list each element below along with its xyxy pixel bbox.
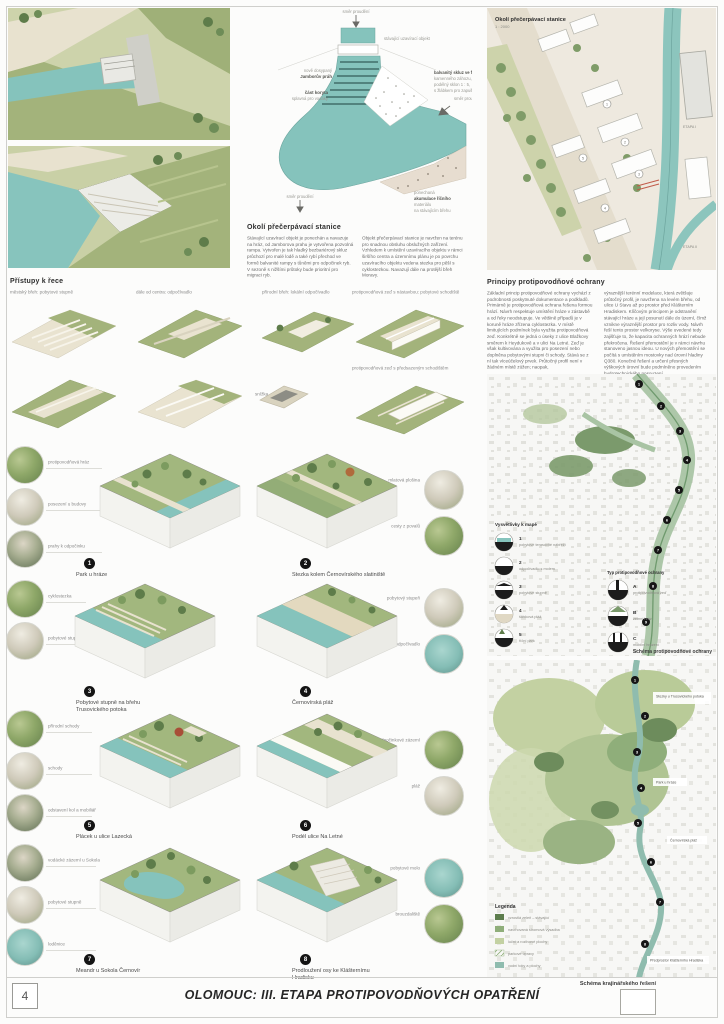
svg-text:mobilní hrazení: mobilní hrazení (633, 643, 660, 647)
site-map-stage2-label: ETAPA II (683, 245, 697, 249)
pump-station-heading: Okolí přečerpávací stanice (247, 224, 341, 231)
detail-photo-plank-paths (424, 516, 464, 556)
svg-text:parkové úpravy: parkové úpravy (508, 952, 534, 956)
svg-text:pobytové terasovité nábřeží: pobytové terasovité nábřeží (519, 543, 567, 547)
site-map: 123 45 Okolí přečerpávací stanice 1 : 20… (487, 8, 716, 270)
svg-text:říční park: říční park (519, 639, 535, 643)
site-map-scale: 1 : 2000 (495, 24, 510, 29)
block-2-number: 2 (300, 558, 311, 569)
skluz-line-2: kamenného záhozu, (434, 76, 472, 81)
koryto-label-2: splavná pro vodáky (292, 96, 329, 101)
detail-photo-seating-steps-2 (6, 886, 44, 924)
detail-photo-rest-thresholds (6, 530, 44, 568)
axon-block-8 (252, 840, 402, 952)
leader-line (46, 950, 96, 951)
svg-text:štěrková pláž: štěrková pláž (519, 615, 541, 619)
flood-map-caption: Schéma protipovodňové ochrany (633, 649, 712, 655)
svg-text:odpočívadlo s molem: odpočívadlo s molem (519, 567, 555, 571)
axon-block-5 (95, 706, 245, 818)
weir-plan-diagram: směr proudění směr proudění směr prouděn… (238, 8, 472, 218)
access-heading: Přístupy k řece (10, 278, 63, 285)
block-4-number: 4 (300, 686, 311, 697)
detail-photo-paddling-pool (424, 904, 464, 944)
svg-text:5: 5 (582, 156, 584, 160)
detail-label-stairs: schody (48, 766, 62, 771)
access-tile-floodwall-seating (352, 374, 468, 436)
detail-photo-natural-stairs (6, 710, 44, 748)
detail-label-natural-stairs: přírodní schody (48, 724, 79, 729)
flow-label-bottom: směr proudění (287, 194, 315, 199)
access-variant2-label: dále od centra: odpočívadlo (136, 290, 192, 295)
svg-text:Stezky u Trusovického potoka: Stezky u Trusovického potoka (656, 695, 704, 699)
axon-block-2 (252, 446, 402, 558)
skluz-line-3: podélný sklon 1 : 5, (434, 82, 470, 87)
axon-block-3 (70, 576, 220, 688)
detail-label-building-seating: posezení u budovy (48, 502, 86, 507)
detail-photo-bike-racks (6, 794, 44, 832)
svg-text:navrhovaná stromová výsadba: navrhovaná stromová výsadba (508, 928, 561, 932)
svg-text:C: C (633, 636, 637, 642)
detail-photo-dwelling-pier (424, 858, 464, 898)
svg-text:vzrostlá zeleň – stávající: vzrostlá zeleň – stávající (508, 916, 550, 920)
weir-axonometry-image-2 (8, 146, 230, 268)
leader-line (46, 468, 102, 469)
access-tile-steps-wide (134, 368, 246, 430)
svg-text:vodní toky a plochy: vodní toky a plochy (508, 964, 541, 968)
access-tile-ramp (8, 368, 120, 430)
detail-photo-cycleway (6, 580, 44, 618)
access-variant1-label: městský břeh: pobytové stupně (10, 290, 73, 295)
footer-divider (7, 977, 717, 978)
detail-photo-beach (424, 776, 464, 816)
flood-map-legend-title: Vysvětlivky k mapě (495, 522, 537, 527)
block-6-number: 6 (300, 820, 311, 831)
block-8-number: 8 (300, 954, 311, 965)
svg-text:Park u hráze: Park u hráze (656, 781, 676, 785)
svg-text:protipovodňová zeď: protipovodňová zeď (633, 591, 667, 595)
access-tile-rest-area (134, 298, 246, 360)
axon-block-7 (95, 840, 245, 952)
leader-line (46, 816, 92, 817)
block-8-caption: Prodloužení osy ke Klášternímu Hradisku (292, 968, 387, 982)
detail-photo-boathouse (6, 928, 44, 966)
detail-photo-terrace-steps (6, 622, 44, 660)
flood-protection-map: 1 2 3 4 5 6 7 8 9 Vysvětlivky k mapě 1 p… (487, 374, 716, 656)
prah-label-2: Jamborův práh (300, 74, 332, 79)
detail-label-seating-steps-2: pobytové stupně (48, 900, 81, 905)
leader-line (46, 552, 102, 553)
detail-photo-seating-step (424, 588, 464, 628)
akumulace-line-4: na stávajícím břehu (414, 208, 451, 213)
leader-line (46, 774, 92, 775)
svg-text:zemní hráz: zemní hráz (633, 617, 652, 621)
axon-block-6 (252, 706, 402, 818)
detail-photo-flood-dike (6, 446, 44, 484)
svg-text:2: 2 (624, 140, 626, 144)
detail-photo-stairs (6, 752, 44, 790)
svg-text:A: A (633, 584, 637, 590)
svg-text:4: 4 (604, 206, 606, 210)
access-tile-steps-urban (8, 298, 120, 360)
svg-text:2: 2 (519, 560, 522, 565)
detail-label-canoe-base: vodácké zázemí u Sokola (48, 858, 100, 863)
block-1-number: 1 (84, 558, 95, 569)
access-variant3-label: přírodní břeh: lokální odpočívadlo (262, 290, 330, 295)
landscape-map-caption: Schéma krajinářského řešení (487, 981, 716, 987)
flow-label-right: směr proudění (454, 96, 472, 101)
svg-text:1: 1 (519, 536, 522, 541)
access-tile-bench-detail (258, 380, 310, 410)
detail-photo-building-seating (6, 488, 44, 526)
prah-label-1: nově dosypaný (304, 68, 333, 73)
block-7-caption: Meandr u Sokola Černovír (76, 968, 171, 975)
gate-label: stávající uzavírací objekt (384, 36, 431, 41)
site-map-title: Okolí přečerpávací stanice (495, 17, 566, 23)
svg-text:Předprostor Klášterního Hradis: Předprostor Klášterního Hradiska (650, 959, 703, 963)
leader-line (46, 908, 96, 909)
flood-map-types-title: Typ protipovodňové ochrany (607, 570, 665, 575)
detail-photo-canoe-base (6, 844, 44, 882)
svg-text:3: 3 (519, 584, 522, 589)
svg-text:pobytové stupně: pobytové stupně (519, 591, 547, 595)
pump-station-paragraph-2: Objekt přečerpávací stanice je navržen n… (362, 236, 470, 297)
svg-text:1: 1 (606, 102, 608, 106)
skluz-line-4: s žlábkem pro zapuštění lodí (434, 88, 472, 93)
access-variant4-label: protipovodňová zeď s nástavbou: pobytové… (352, 290, 459, 295)
detail-label-cycleway: cyklostezka (48, 594, 72, 599)
principles-heading: Principy protipovodňové ochrany (487, 279, 605, 286)
detail-label-bike-racks: odstavení kol a mobiliář (48, 808, 96, 813)
axon-block-4 (252, 576, 402, 688)
site-map-stage1-label: ETAPA I (683, 125, 696, 129)
koryto-label-1: část koryta (305, 90, 329, 95)
detail-photo-rest-facilities (424, 730, 464, 770)
detail-label-flood-dike: protipovodňová hráz (48, 460, 89, 465)
poster-board: směr proudění směr proudění směr prouděn… (0, 0, 724, 1024)
poster-title: OLOMOUC: III. ETAPA PROTIPOVODŇOVÝCH OPA… (0, 988, 724, 1002)
access-tile-floodwall-steps (352, 298, 468, 360)
landscape-map: 1 2 3 4 5 6 7 8 Stezky u Trusovického po… (487, 660, 716, 978)
svg-text:luční a rozlivové plochy: luční a rozlivové plochy (508, 940, 547, 944)
svg-text:5: 5 (519, 632, 522, 637)
flow-label-top: směr proudění (343, 9, 371, 14)
detail-photo-gravel-deck (424, 470, 464, 510)
weir-axonometry-image-1 (8, 8, 230, 140)
block-3-number: 3 (84, 686, 95, 697)
detail-label-boathouse: loděnice (48, 942, 65, 947)
svg-text:Černovírská pláž: Černovírská pláž (670, 838, 697, 843)
svg-text:B: B (633, 610, 637, 616)
axon-block-1 (95, 446, 245, 558)
pump-station-paragraph-1: Stávající uzavírací objekt je ponechán a… (247, 236, 355, 297)
leader-line (46, 510, 102, 511)
skluz-line-1: balvanitý skluz ve formě (434, 70, 472, 75)
detail-label-rest-thresholds: prahy k odpočinku (48, 544, 85, 549)
svg-text:4: 4 (519, 608, 522, 613)
block-7-number: 7 (84, 954, 95, 965)
access-note2-label: protipovodňová zeď s předsazeným schodiš… (352, 366, 448, 371)
leader-line (46, 866, 96, 867)
access-tile-natural-bank (258, 298, 358, 360)
landscape-legend-title: Legenda (495, 904, 516, 910)
svg-text:3: 3 (638, 172, 640, 176)
leader-line (46, 732, 92, 733)
akumulace-line-3: materiálu (414, 202, 432, 207)
detail-photo-wooden-rest (424, 634, 464, 674)
block-5-number: 5 (84, 820, 95, 831)
akumulace-line-2: akumulace říčního (414, 196, 451, 201)
akumulace-line-1: ponechaná (414, 190, 435, 195)
